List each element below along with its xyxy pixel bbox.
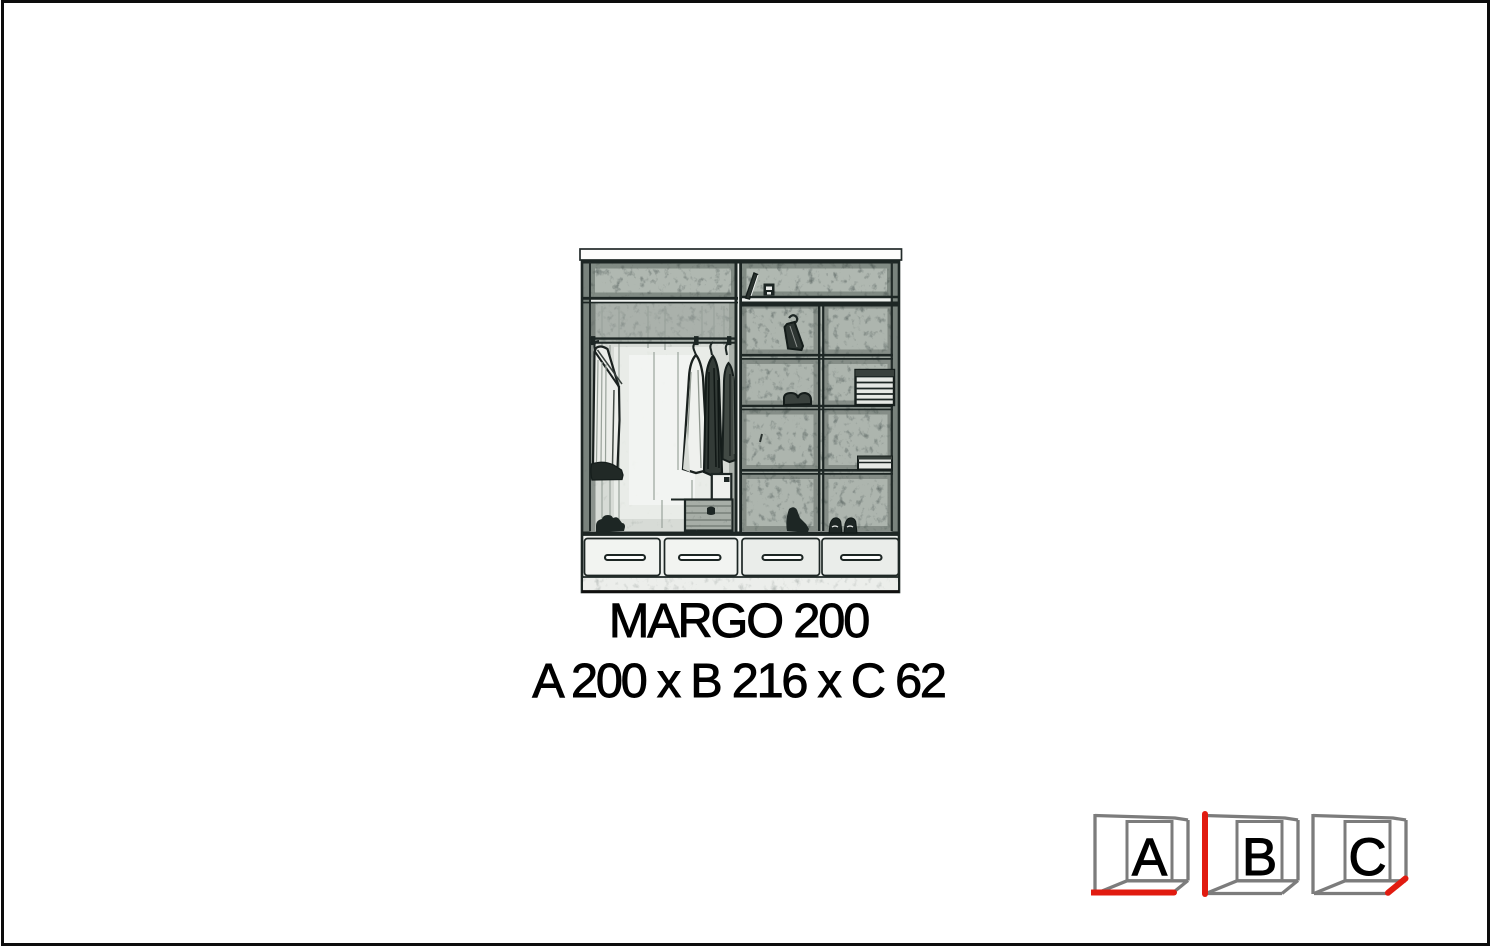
svg-text:C: C	[1348, 828, 1386, 887]
svg-text:B: B	[1242, 828, 1277, 887]
svg-text:A: A	[1132, 828, 1168, 887]
